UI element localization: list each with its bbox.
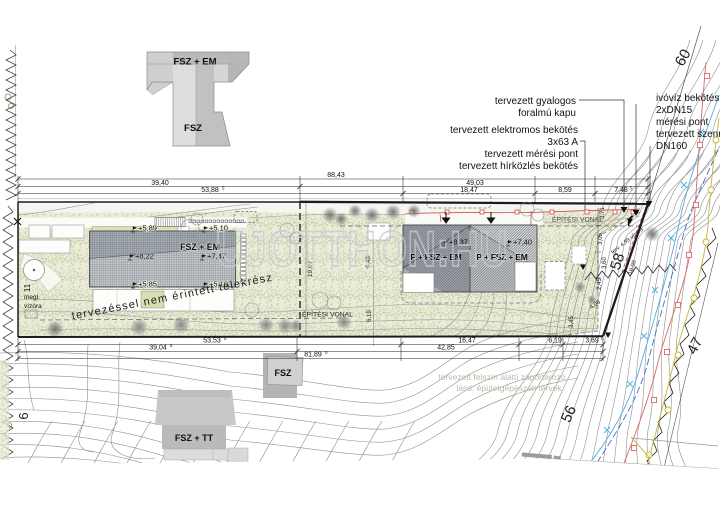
svg-text:18,47: 18,47 bbox=[460, 187, 478, 194]
svg-text:ÉPÍTÉSI VONAL: ÉPÍTÉSI VONAL bbox=[302, 310, 353, 319]
svg-text:3x63 A: 3x63 A bbox=[547, 137, 578, 148]
svg-text:2xDN15: 2xDN15 bbox=[656, 105, 693, 116]
svg-text:3,45: 3,45 bbox=[569, 316, 575, 328]
svg-text:ÉPÍTÉSI VONAL: ÉPÍTÉSI VONAL bbox=[552, 215, 603, 224]
svg-text:11: 11 bbox=[23, 283, 32, 292]
svg-text:tervezett elektromos bekötés: tervezett elektromos bekötés bbox=[450, 125, 578, 136]
svg-text:mérési pont: mérési pont bbox=[656, 117, 708, 128]
svg-text:+5,85: +5,85 bbox=[138, 280, 157, 289]
svg-text:ivóvíz bekötés: ivóvíz bekötés bbox=[656, 93, 719, 104]
svg-text:16,47: 16,47 bbox=[458, 338, 476, 345]
svg-text:megl.: megl. bbox=[24, 294, 40, 301]
svg-text:FSZ + EM: FSZ + EM bbox=[173, 57, 216, 68]
svg-text:tervezett szennyvíz: tervezett szennyvíz bbox=[656, 129, 720, 140]
svg-text:3,71: 3,71 bbox=[600, 207, 606, 219]
svg-text:FSZ: FSZ bbox=[275, 368, 293, 378]
svg-text:tervezett hírközlés bekötés: tervezett hírközlés bekötés bbox=[459, 161, 578, 172]
svg-text:60: 60 bbox=[672, 46, 695, 69]
svg-text:tervezett felszín alatti zápor: tervezett felszín alatti záportározó bbox=[438, 372, 565, 382]
svg-text:FSZ + TT: FSZ + TT bbox=[175, 433, 214, 443]
svg-text:8,59: 8,59 bbox=[558, 187, 572, 194]
svg-text:53,53: 53,53 bbox=[203, 338, 221, 345]
svg-text:0: 0 bbox=[325, 350, 328, 355]
svg-text:6: 6 bbox=[16, 412, 31, 419]
svg-text:FSZ + EM: FSZ + EM bbox=[180, 242, 220, 252]
svg-text:39,04: 39,04 bbox=[149, 345, 167, 352]
svg-text:88,43: 88,43 bbox=[327, 172, 345, 179]
svg-text:+8,22: +8,22 bbox=[135, 252, 154, 261]
svg-text:+7,40: +7,40 bbox=[513, 238, 532, 247]
svg-text:49,03: 49,03 bbox=[466, 180, 484, 187]
svg-text:foralmú kapu: foralmú kapu bbox=[518, 108, 576, 119]
svg-text:6,19: 6,19 bbox=[548, 338, 562, 345]
svg-text:56: 56 bbox=[558, 403, 580, 425]
svg-text:+5,89: +5,89 bbox=[138, 224, 157, 233]
svg-text:53,88: 53,88 bbox=[201, 187, 219, 194]
svg-text:lásd: épületgépészeti tervek: lásd: épületgépészeti tervek bbox=[456, 383, 562, 393]
svg-text:47: 47 bbox=[684, 335, 707, 358]
svg-text:6,19: 6,19 bbox=[367, 310, 373, 322]
svg-text:5: 5 bbox=[170, 343, 173, 348]
svg-text:vízóra: vízóra bbox=[24, 303, 42, 310]
svg-text:tervezett mérési pont: tervezett mérési pont bbox=[485, 149, 579, 160]
svg-text:tervezett gyalogos: tervezett gyalogos bbox=[495, 96, 576, 107]
svg-text:42,85: 42,85 bbox=[437, 345, 455, 352]
svg-text:0: 0 bbox=[601, 336, 604, 341]
svg-text:3,05: 3,05 bbox=[598, 233, 604, 245]
svg-text:DN160: DN160 bbox=[656, 141, 688, 152]
svg-text:7,48: 7,48 bbox=[614, 187, 628, 194]
svg-text:UJOTTHON:HU: UJOTTHON:HU bbox=[216, 220, 508, 277]
svg-text:81,89: 81,89 bbox=[304, 352, 322, 359]
svg-text:39,40: 39,40 bbox=[151, 180, 169, 187]
svg-text:terv. 4,99 vízóra: terv. 4,99 vízóra bbox=[610, 226, 645, 255]
svg-text:FSZ: FSZ bbox=[184, 123, 202, 134]
svg-text:3,69: 3,69 bbox=[585, 338, 599, 345]
